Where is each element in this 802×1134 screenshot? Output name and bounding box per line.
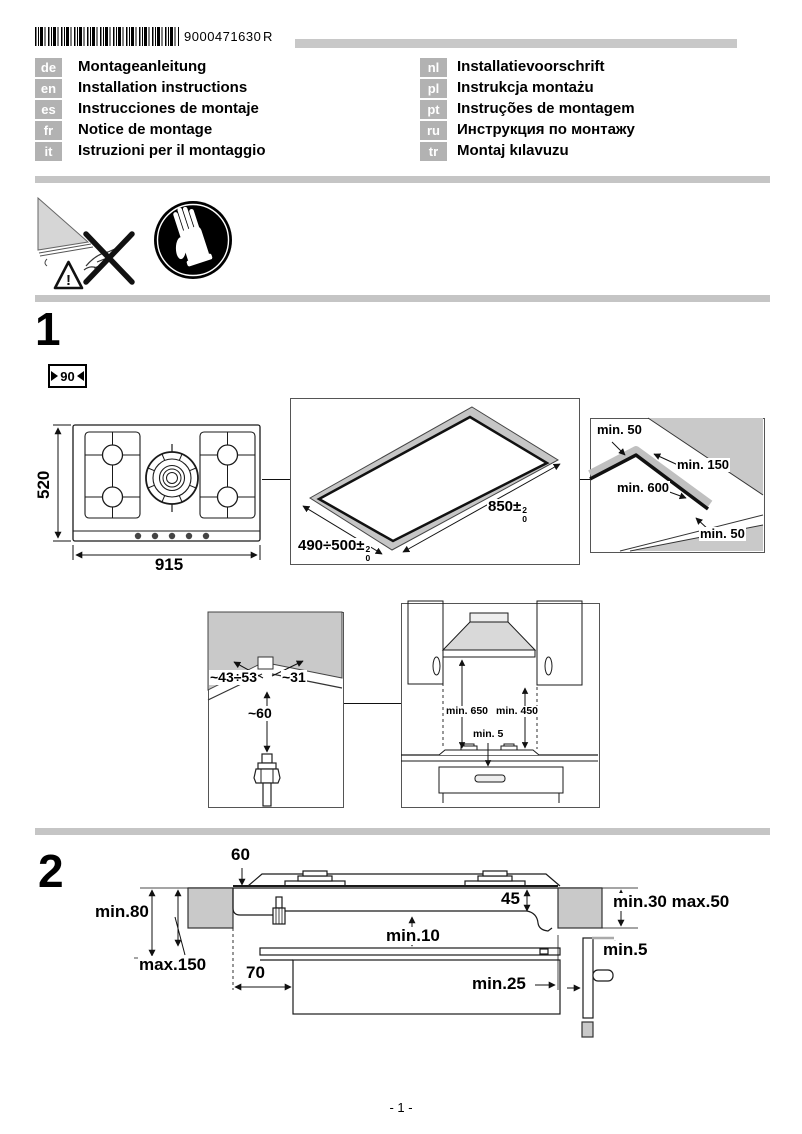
barcode — [35, 27, 179, 46]
arrow-left-icon — [77, 371, 84, 381]
tol-minus: 0 — [522, 515, 527, 524]
clearance-side-front: min. 50 — [699, 527, 746, 541]
sharp-edge-warning-icon: ! — [38, 198, 132, 289]
hood-distance-dim: min. 650 — [445, 706, 489, 717]
panel-gap-dim: min.5 — [602, 941, 648, 959]
separator-bar — [35, 295, 770, 302]
lang-title-it: Istruzioni per il montaggio — [78, 142, 266, 159]
cutout-width-value: 490÷500± — [298, 537, 365, 554]
hob-width-dim: 915 — [150, 556, 188, 574]
gas-dim-below: ~60 — [247, 706, 273, 721]
gas-connection-drawing — [208, 612, 342, 806]
section-1-number: 1 — [35, 306, 61, 352]
max-height-dim: max.150 — [138, 956, 207, 974]
lang-title-de: Montageanleitung — [78, 58, 206, 75]
gas-dim-left: ~43÷53 — [209, 670, 258, 685]
bottom-clearance-dim: min.10 — [385, 927, 441, 945]
separator-bar — [35, 176, 770, 183]
section-2-number: 2 — [38, 848, 64, 894]
svg-text:!: ! — [66, 272, 71, 289]
header-gray-strip — [295, 39, 737, 48]
tol-minus: 0 — [366, 554, 371, 563]
clearance-rear: min. 50 — [596, 423, 643, 437]
safety-pictograms: ! — [36, 192, 246, 297]
rear-clearance-dim: min.25 — [471, 975, 527, 993]
lang-title-fr: Notice de montage — [78, 121, 212, 138]
lang-title-es: Instrucciones de montaje — [78, 100, 259, 117]
cutout-width-dim: 490÷500±20 — [297, 538, 371, 562]
separator-bar — [35, 828, 770, 835]
lang-title-pl: Instrukcja montażu — [457, 79, 594, 96]
lang-code-nl: nl — [420, 58, 447, 77]
lang-code-it: it — [35, 142, 62, 161]
installation-cross-section-drawing — [90, 845, 780, 1060]
lang-title-en: Installation instructions — [78, 79, 247, 96]
recess-depth-dim: 45 — [500, 890, 521, 908]
arrow-right-icon — [51, 371, 58, 381]
lang-title-ru: Инструкция по монтажу — [457, 121, 635, 138]
barcode-number: 9000471630 — [184, 29, 261, 44]
connector-line — [262, 479, 290, 480]
connector-line — [342, 703, 401, 704]
lang-code-ru: ru — [420, 121, 447, 140]
cutout-length-value: 850± — [488, 498, 521, 515]
wear-gloves-icon — [154, 201, 232, 279]
right-range-dim: min.30 max.50 — [612, 893, 730, 911]
clearance-side-right: min. 150 — [676, 458, 730, 472]
hood-gap-dim: min. 5 — [472, 729, 504, 740]
clearance-front: min. 600 — [616, 481, 670, 495]
lang-code-de: de — [35, 58, 62, 77]
lang-title-tr: Montaj kılavuzu — [457, 142, 569, 159]
min-height-dim: min.80 — [94, 903, 150, 921]
front-distance-dim: 70 — [245, 964, 266, 982]
lang-code-pt: pt — [420, 100, 447, 119]
cabinet-distance-dim: min. 450 — [495, 706, 539, 717]
hob-depth-dim: 520 — [32, 460, 56, 510]
lang-code-es: es — [35, 100, 62, 119]
lang-title-nl: Installatievoorschrift — [457, 58, 605, 75]
hob-width-badge: 90 — [48, 364, 87, 388]
lang-code-en: en — [35, 79, 62, 98]
revision-code: R — [263, 29, 272, 44]
lang-title-pt: Instruções de montagem — [457, 100, 635, 117]
page-number: - 1 - — [0, 1100, 802, 1115]
lang-code-fr: fr — [35, 121, 62, 140]
lang-code-pl: pl — [420, 79, 447, 98]
lang-code-tr: tr — [420, 142, 447, 161]
gas-dim-right: ~31 — [281, 670, 307, 685]
hob-width-value: 90 — [60, 370, 74, 383]
worktop-thickness-dim: 60 — [230, 846, 251, 864]
manual-page: 9000471630 R de Montageanleitung en Inst… — [0, 0, 802, 1134]
cutout-length-dim: 850±20 — [487, 499, 528, 523]
